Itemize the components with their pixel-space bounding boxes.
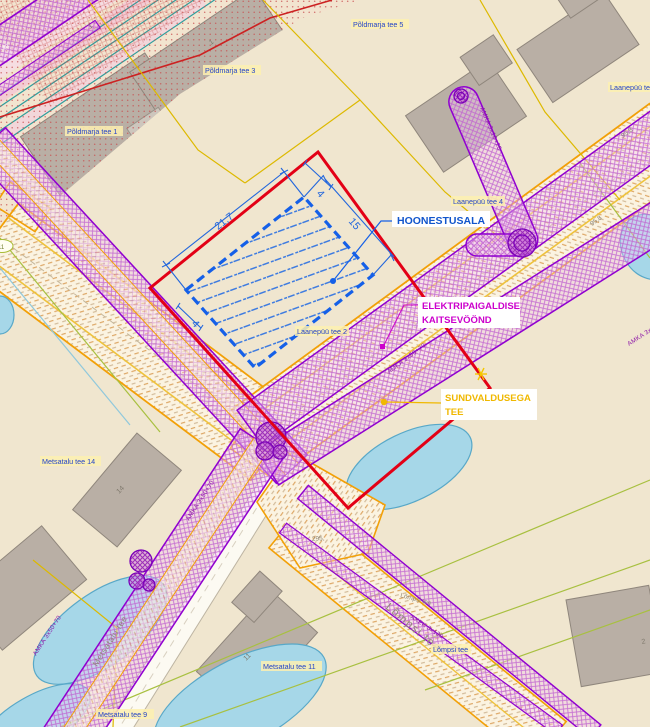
address-label: Põldmarja tee 1 <box>65 126 123 136</box>
address-label: Laanepüü tee 4 <box>451 196 505 206</box>
svg-text:Laanepüü tee 4: Laanepüü tee 4 <box>453 197 503 206</box>
road-badge-text: 11 <box>0 245 5 251</box>
address-label: Põldmarja tee 5 <box>351 19 409 29</box>
label-sundvaldus-1: SUNDVALDUSEGA <box>445 393 531 404</box>
address-label: Metsatalu tee 9 <box>96 709 154 719</box>
svg-text:Metsatalu tee 11: Metsatalu tee 11 <box>263 662 316 671</box>
address-label: Põldmarja tee 3 <box>203 65 261 75</box>
address-label: Metsatalu tee 14 <box>40 456 101 466</box>
address-label: Laanepüü tee 2 <box>295 326 349 336</box>
label-kaitsevoond-2: KAITSEVÖÖND <box>422 315 492 326</box>
pylon-icon <box>130 550 152 572</box>
address-label: Lõmpsi tee <box>431 644 471 654</box>
svg-text:Lõmpsi tee: Lõmpsi tee <box>433 645 468 654</box>
svg-text:Metsatalu tee 9: Metsatalu tee 9 <box>98 710 147 719</box>
svg-text:Põldmarja tee 1: Põldmarja tee 1 <box>67 127 117 136</box>
pylon-icon <box>273 445 287 459</box>
planning-map: 11 <box>0 0 650 727</box>
address-label: Metsatalu tee 11 <box>261 661 322 671</box>
address-label: Laanepüü tee <box>608 82 650 92</box>
road-measure-3: 295, <box>312 535 325 543</box>
pylon-icon <box>256 442 274 460</box>
leader-dot-yellow <box>381 399 387 405</box>
pylon-icon <box>143 579 155 591</box>
svg-text:Põldmarja tee 3: Põldmarja tee 3 <box>205 66 255 75</box>
leader-square-magenta <box>380 344 385 349</box>
svg-text:Laanepüü tee: Laanepüü tee <box>610 83 650 92</box>
pylon-icon <box>514 235 530 251</box>
label-kaitsevoond-1: ELEKTRIPAIGALDISE <box>422 301 520 312</box>
svg-text:Laanepüü tee 2: Laanepüü tee 2 <box>297 327 347 336</box>
map-canvas: 11 <box>0 0 650 727</box>
svg-text:Metsatalu tee 14: Metsatalu tee 14 <box>42 457 95 466</box>
label-sundvaldus-2: TEE <box>445 407 463 418</box>
label-hoonestusala: HOONESTUSALA <box>397 215 486 227</box>
svg-text:Põldmarja tee 5: Põldmarja tee 5 <box>353 20 403 29</box>
pylon-icon <box>458 93 465 100</box>
